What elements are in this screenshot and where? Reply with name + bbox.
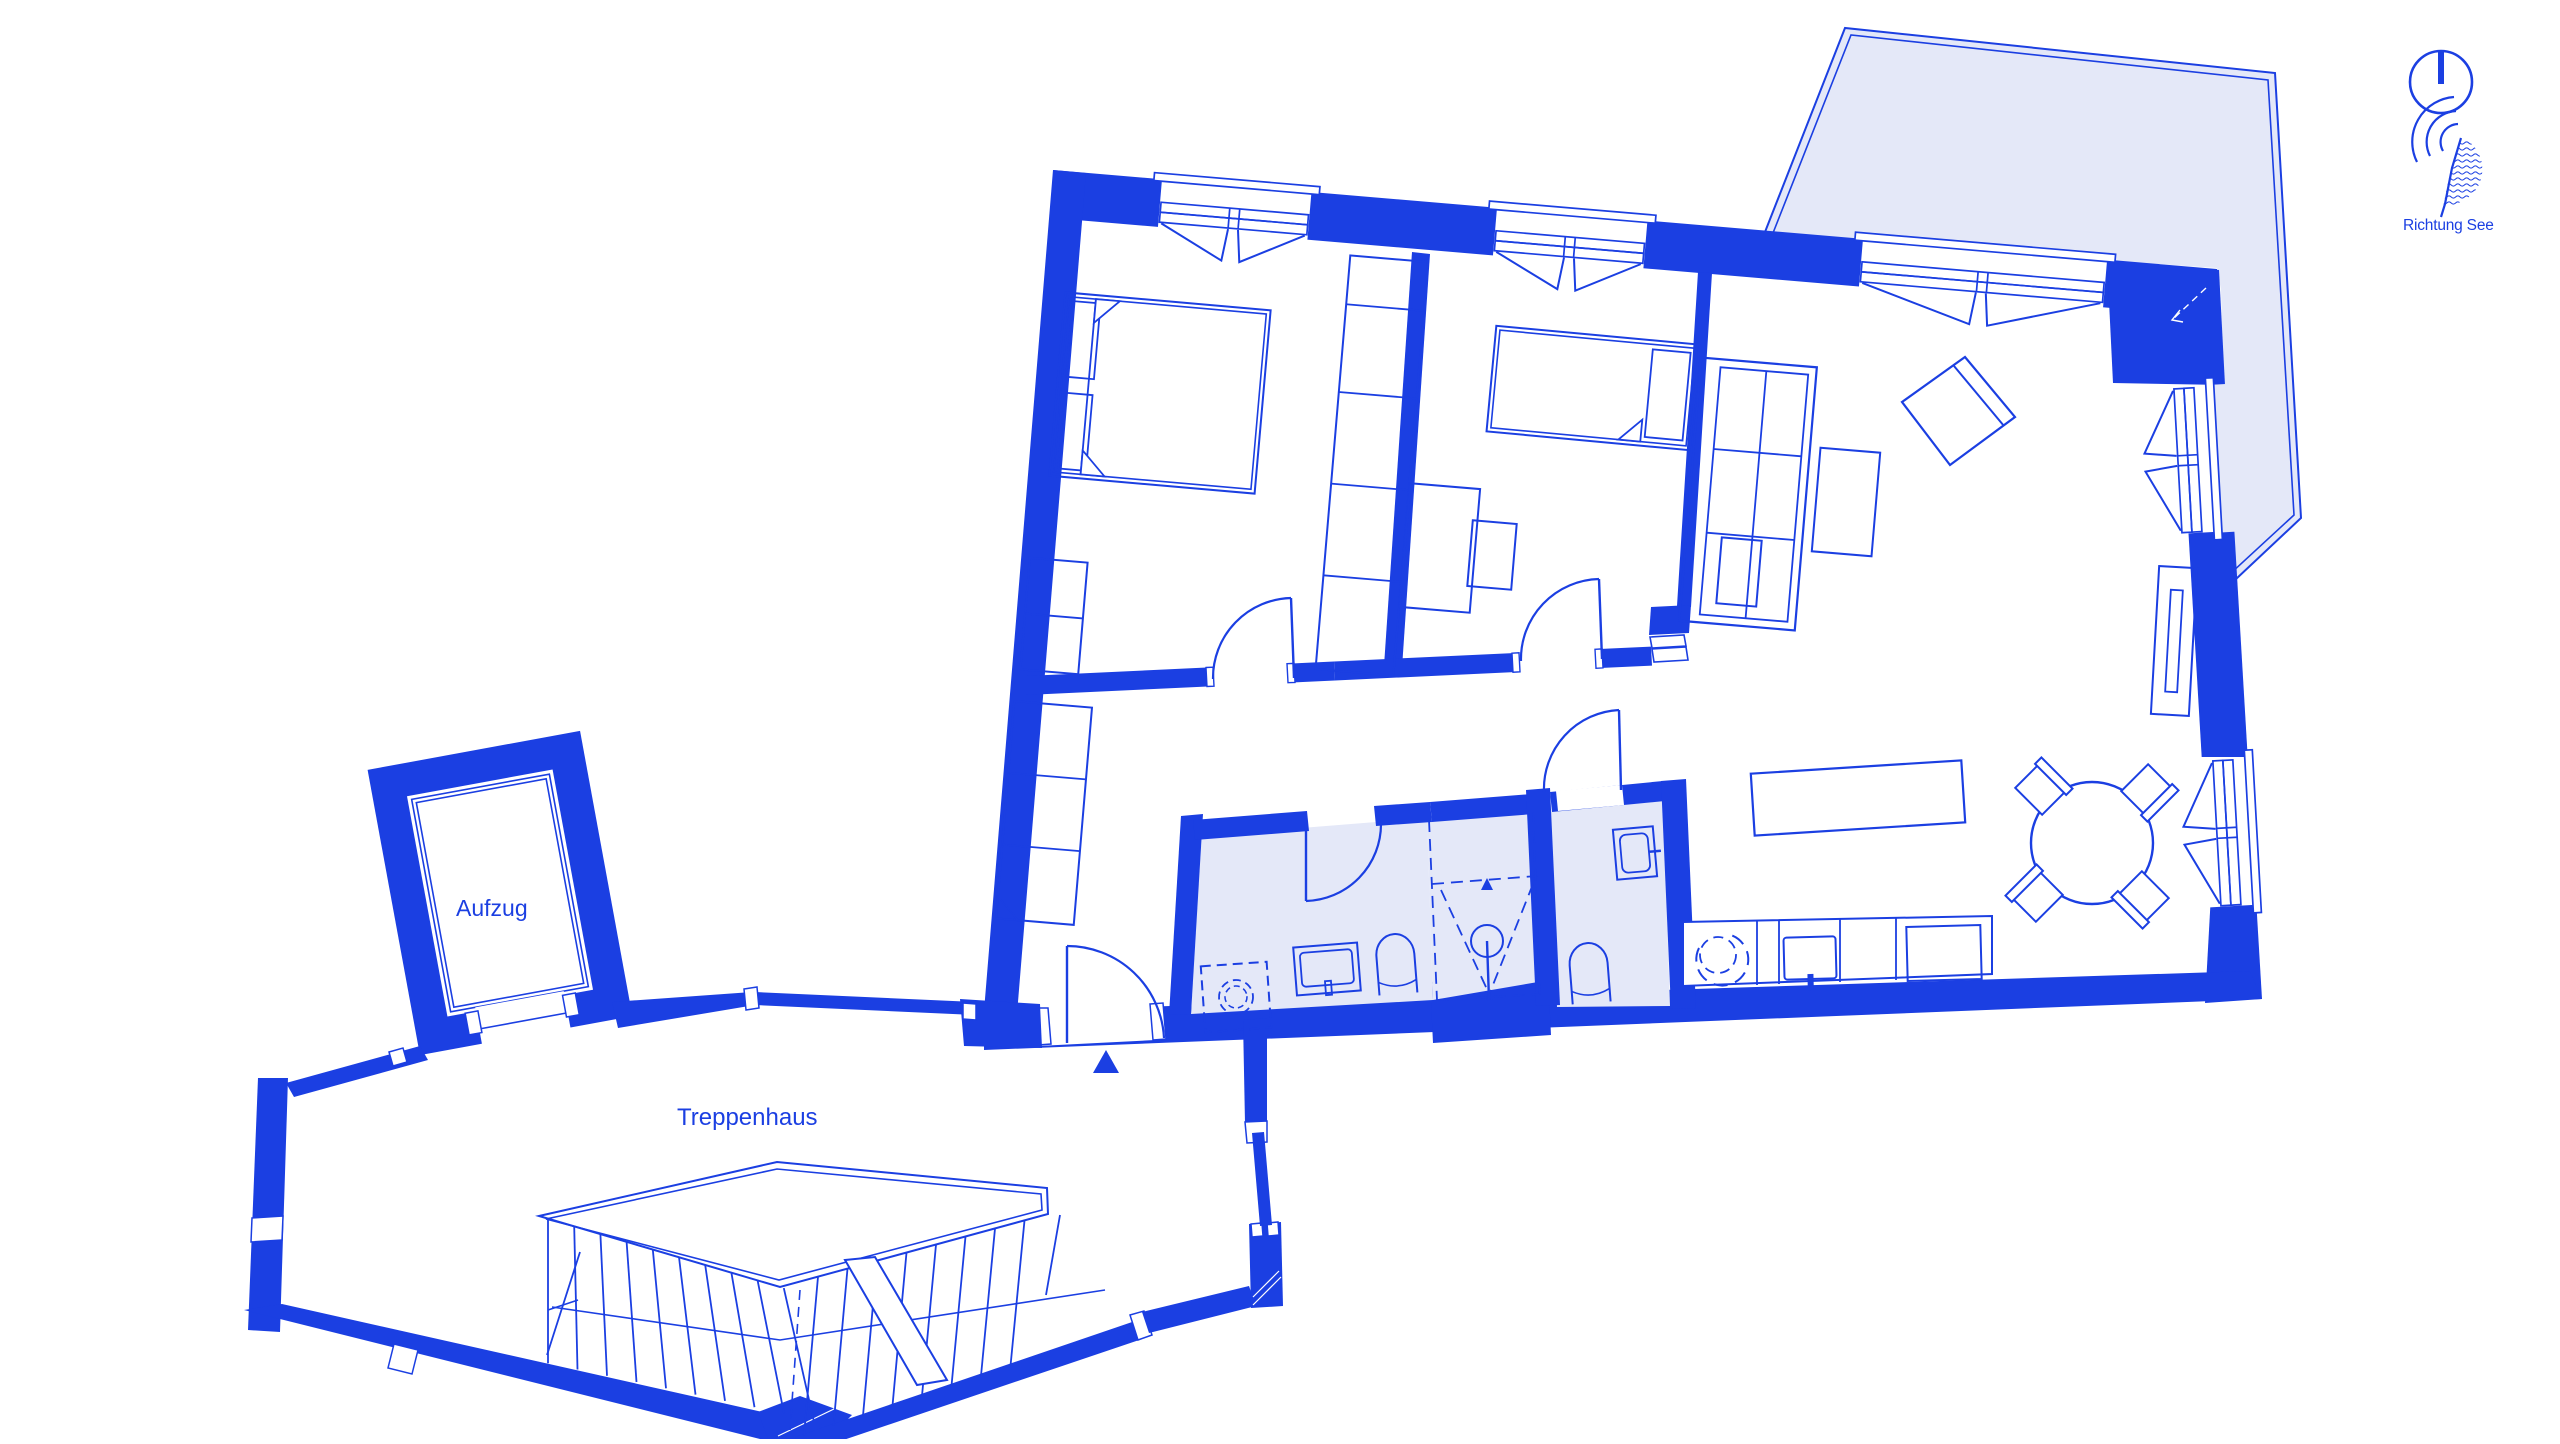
svg-text:Aufzug: Aufzug [456, 895, 528, 921]
svg-text:Richtung See: Richtung See [2403, 217, 2494, 234]
svg-text:Treppenhaus: Treppenhaus [677, 1104, 818, 1131]
